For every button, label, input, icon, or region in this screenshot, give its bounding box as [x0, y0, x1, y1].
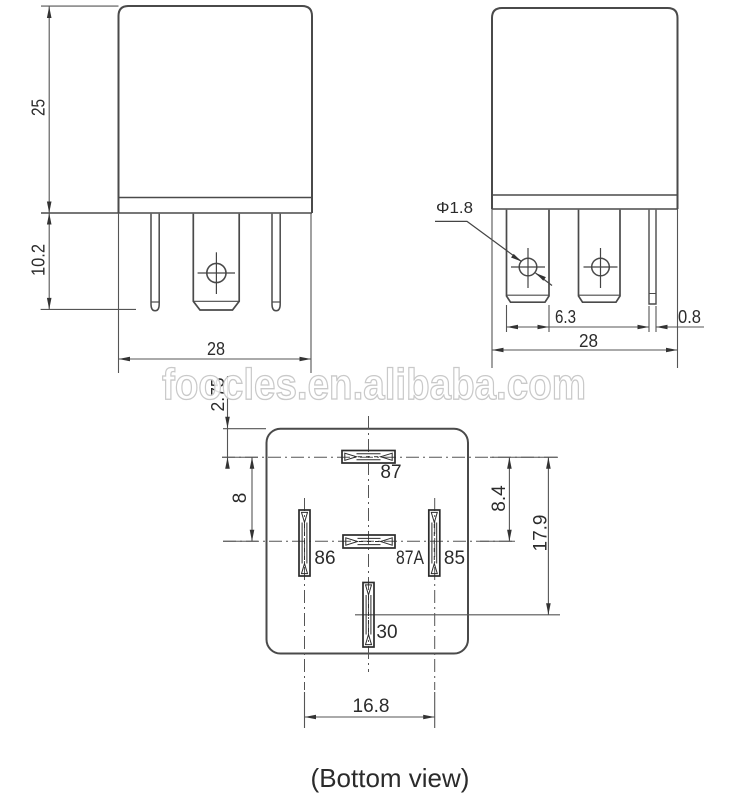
svg-text:85: 85: [444, 548, 465, 569]
svg-text:Φ1.8: Φ1.8: [436, 200, 473, 217]
svg-text:8: 8: [230, 493, 251, 504]
svg-text:86: 86: [314, 548, 335, 569]
svg-text:8.4: 8.4: [489, 485, 510, 512]
svg-text:16.8: 16.8: [353, 696, 390, 717]
svg-text:10.2: 10.2: [29, 244, 49, 276]
svg-text:30: 30: [376, 622, 397, 643]
svg-text:0.8: 0.8: [678, 307, 701, 327]
svg-text:87: 87: [380, 462, 401, 483]
svg-text:87A: 87A: [396, 548, 424, 569]
svg-text:28: 28: [579, 331, 598, 351]
svg-text:6.3: 6.3: [555, 307, 576, 327]
svg-text:25: 25: [29, 99, 49, 116]
svg-text:17.9: 17.9: [531, 515, 552, 552]
svg-text:28: 28: [207, 339, 225, 359]
svg-text:foocles.en.alibaba.com: foocles.en.alibaba.com: [162, 360, 586, 409]
svg-text:(Bottom view): (Bottom view): [311, 763, 470, 793]
